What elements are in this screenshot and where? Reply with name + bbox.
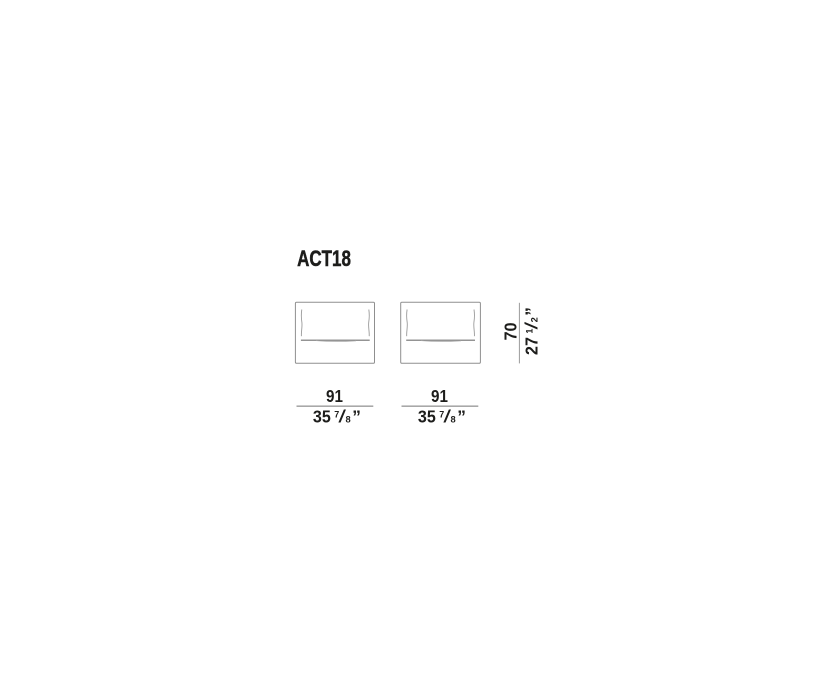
svg-text:35: 35 bbox=[313, 406, 331, 426]
svg-text:91: 91 bbox=[431, 386, 448, 406]
svg-text:”: ” bbox=[352, 406, 361, 426]
svg-text:”: ” bbox=[521, 307, 541, 316]
svg-text:”: ” bbox=[457, 406, 466, 426]
svg-text:8: 8 bbox=[451, 415, 456, 425]
svg-text:27: 27 bbox=[521, 337, 541, 355]
svg-text:91: 91 bbox=[326, 386, 343, 406]
svg-text:35: 35 bbox=[418, 406, 436, 426]
svg-text:8: 8 bbox=[346, 415, 351, 425]
svg-text:70: 70 bbox=[501, 322, 521, 340]
svg-text:2: 2 bbox=[529, 317, 539, 322]
svg-text:ACT18: ACT18 bbox=[297, 246, 351, 271]
